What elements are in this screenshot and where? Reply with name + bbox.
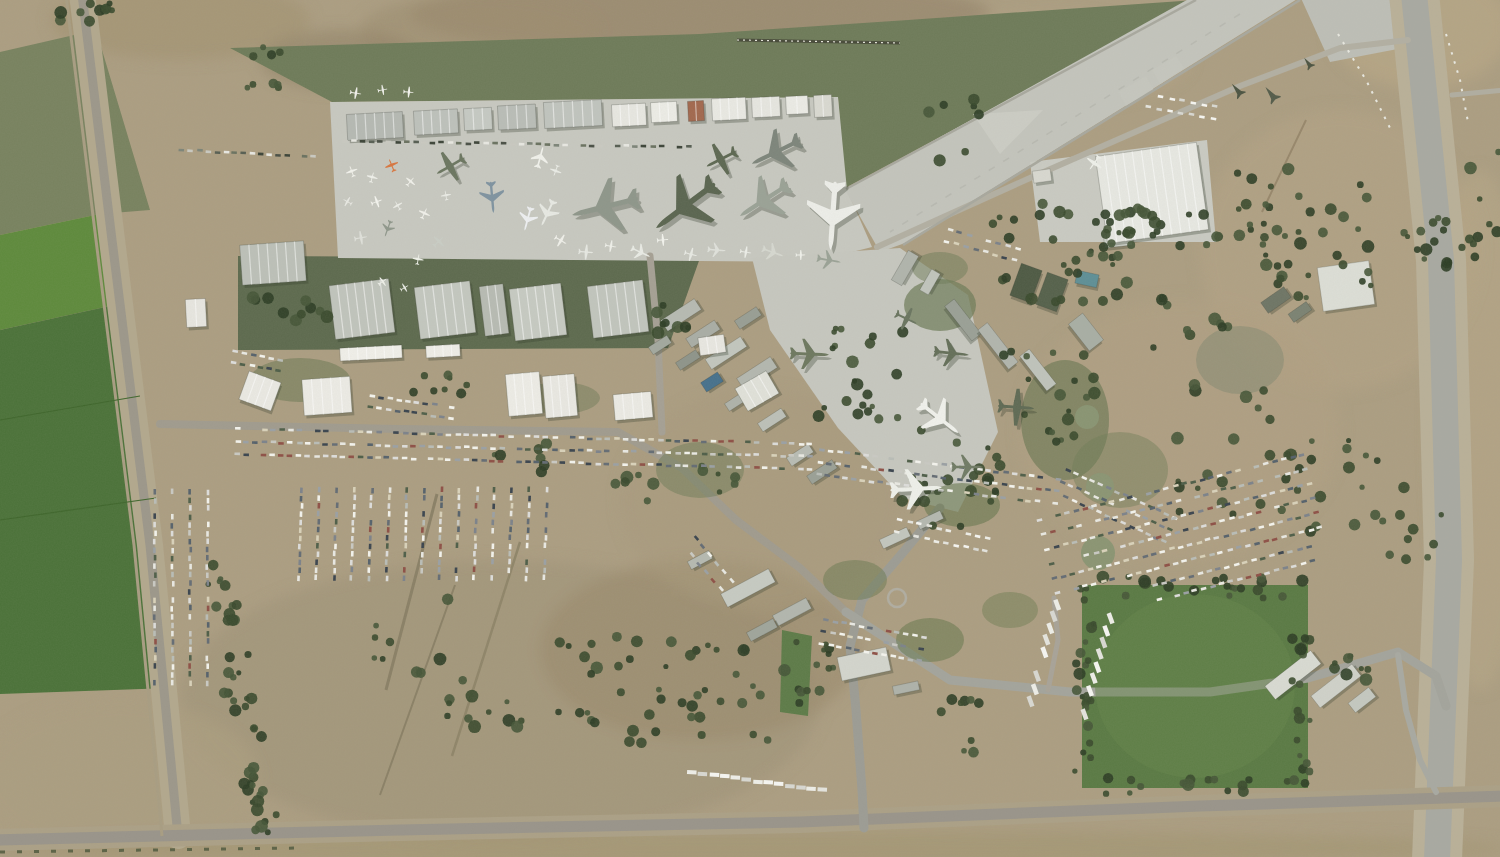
parked-vehicle bbox=[474, 535, 477, 541]
parked-vehicle bbox=[546, 503, 549, 509]
tree bbox=[1296, 680, 1304, 688]
tree bbox=[1026, 377, 1032, 383]
tree bbox=[1065, 268, 1073, 276]
parked-vehicle bbox=[438, 535, 441, 541]
parked-vehicle bbox=[745, 453, 751, 456]
tree bbox=[1395, 510, 1405, 520]
parked-vehicle bbox=[528, 503, 531, 509]
parked-vehicle bbox=[457, 526, 460, 532]
parked-vehicle bbox=[552, 448, 558, 451]
parked-vehicle bbox=[543, 574, 546, 580]
tree bbox=[1079, 350, 1089, 360]
tree bbox=[1150, 232, 1157, 239]
parked-vehicle bbox=[511, 503, 514, 509]
parked-vehicle bbox=[438, 141, 444, 144]
parked-vehicle bbox=[317, 527, 320, 533]
parked-vehicle bbox=[464, 445, 470, 448]
parked-vehicle bbox=[807, 468, 813, 471]
lawn-spot bbox=[982, 592, 1038, 628]
tree bbox=[245, 85, 251, 91]
parked-vehicle bbox=[455, 458, 461, 461]
parked-vehicle bbox=[439, 519, 442, 525]
parked-vehicle bbox=[421, 552, 424, 558]
tree bbox=[1364, 666, 1371, 673]
tree bbox=[1253, 585, 1263, 595]
parked-vehicle bbox=[317, 519, 320, 525]
parked-vehicle bbox=[340, 442, 346, 445]
tree bbox=[1260, 241, 1266, 247]
tree bbox=[793, 639, 799, 645]
parked-vehicle bbox=[332, 443, 338, 446]
parked-vehicle bbox=[490, 447, 496, 450]
tree bbox=[1100, 209, 1110, 219]
tree bbox=[694, 712, 705, 723]
parked-vehicle bbox=[235, 427, 241, 430]
tree bbox=[992, 453, 1001, 462]
tree bbox=[1189, 379, 1201, 391]
tree bbox=[76, 8, 84, 16]
parked-vehicle bbox=[154, 498, 157, 504]
parked-vehicle bbox=[545, 535, 548, 541]
tree bbox=[1083, 639, 1089, 645]
tree bbox=[940, 101, 948, 109]
tree bbox=[1130, 228, 1136, 234]
parked-vehicle bbox=[491, 520, 494, 526]
tree bbox=[1440, 227, 1447, 234]
tree bbox=[1268, 184, 1274, 190]
tree bbox=[468, 720, 481, 733]
parked-vehicle bbox=[154, 639, 157, 645]
parked-vehicle bbox=[189, 655, 192, 661]
parked-vehicle bbox=[386, 543, 389, 549]
parked-vehicle bbox=[753, 453, 759, 456]
parked-vehicle bbox=[252, 441, 258, 444]
parked-vehicle bbox=[171, 631, 174, 637]
tree bbox=[372, 655, 377, 660]
parked-vehicle bbox=[153, 614, 156, 620]
parked-vehicle bbox=[386, 576, 389, 582]
parked-vehicle bbox=[422, 511, 425, 517]
parked-vehicle bbox=[271, 440, 277, 443]
parked-vehicle bbox=[543, 568, 546, 574]
tree bbox=[236, 670, 241, 675]
tree bbox=[1297, 753, 1302, 758]
parked-vehicle bbox=[428, 445, 434, 448]
tree bbox=[1035, 210, 1045, 220]
tree bbox=[1255, 405, 1262, 412]
tree bbox=[1309, 438, 1315, 444]
tree bbox=[842, 396, 852, 406]
parked-vehicle bbox=[421, 543, 424, 549]
parked-vehicle bbox=[422, 520, 425, 526]
parked-vehicle bbox=[455, 567, 458, 573]
parked-vehicle bbox=[774, 781, 784, 785]
parked-vehicle bbox=[335, 512, 338, 518]
tent-roof bbox=[329, 279, 395, 340]
tree bbox=[1246, 173, 1257, 184]
tree bbox=[1073, 269, 1082, 278]
parked-vehicle bbox=[665, 451, 671, 454]
parked-vehicle bbox=[519, 143, 525, 146]
parked-vehicle bbox=[527, 142, 533, 145]
tree bbox=[874, 414, 883, 423]
parked-vehicle bbox=[589, 145, 595, 148]
tree bbox=[575, 708, 585, 718]
parked-vehicle bbox=[315, 568, 318, 574]
tree bbox=[1277, 275, 1285, 283]
tent bbox=[543, 99, 604, 131]
parked-vehicle bbox=[552, 461, 558, 464]
tree bbox=[1370, 510, 1380, 520]
parked-vehicle bbox=[489, 460, 495, 463]
tree bbox=[716, 472, 721, 477]
parked-vehicle bbox=[730, 775, 740, 779]
parked-vehicle bbox=[386, 551, 389, 557]
parked-vehicle bbox=[440, 496, 443, 502]
tree bbox=[946, 694, 957, 705]
parked-vehicle bbox=[314, 455, 320, 458]
tree bbox=[1091, 621, 1097, 627]
parked-vehicle bbox=[323, 455, 329, 458]
tree bbox=[230, 697, 237, 704]
parked-vehicle bbox=[684, 452, 690, 455]
tree bbox=[1274, 262, 1282, 270]
tree bbox=[276, 49, 284, 57]
parked-vehicle bbox=[207, 498, 210, 504]
tree bbox=[1001, 273, 1011, 283]
tree bbox=[999, 350, 1008, 359]
tent-rib bbox=[366, 347, 367, 360]
tent bbox=[505, 371, 545, 419]
parked-vehicle bbox=[351, 536, 354, 542]
parked-vehicle bbox=[153, 522, 156, 528]
building-roof bbox=[1317, 261, 1375, 312]
parked-vehicle bbox=[153, 581, 156, 587]
parked-vehicle bbox=[510, 143, 516, 146]
parked-vehicle bbox=[771, 454, 777, 457]
parked-vehicle bbox=[527, 528, 530, 534]
parked-vehicle bbox=[189, 671, 192, 677]
parked-vehicle bbox=[300, 511, 303, 517]
parked-vehicle bbox=[207, 631, 210, 637]
parked-vehicle bbox=[206, 573, 209, 579]
parked-vehicle bbox=[448, 141, 454, 144]
tree bbox=[620, 477, 629, 486]
parked-vehicle bbox=[353, 495, 356, 501]
parked-vehicle bbox=[420, 559, 423, 565]
tree bbox=[678, 698, 687, 707]
parked-vehicle bbox=[692, 465, 698, 468]
parked-vehicle bbox=[560, 449, 566, 452]
tree bbox=[1099, 242, 1109, 252]
tree bbox=[821, 647, 826, 652]
tree bbox=[1066, 409, 1071, 414]
parked-vehicle bbox=[542, 448, 548, 451]
parked-vehicle bbox=[420, 445, 426, 448]
parked-vehicle bbox=[525, 460, 531, 463]
parked-vehicle bbox=[316, 543, 319, 549]
parked-vehicle bbox=[353, 487, 356, 493]
tree bbox=[1282, 163, 1294, 175]
parked-vehicle bbox=[404, 536, 407, 542]
tree bbox=[1156, 294, 1168, 306]
parked-vehicle bbox=[687, 770, 697, 774]
tree bbox=[891, 369, 902, 380]
parked-vehicle bbox=[727, 465, 733, 468]
parked-vehicle bbox=[231, 151, 237, 154]
parked-vehicle bbox=[349, 575, 352, 581]
tree bbox=[750, 731, 757, 738]
parked-vehicle bbox=[798, 468, 804, 471]
tree bbox=[1295, 193, 1302, 200]
parked-vehicle bbox=[393, 457, 399, 460]
parked-vehicle bbox=[171, 647, 174, 653]
parked-vehicle bbox=[188, 663, 191, 669]
parked-vehicle bbox=[492, 142, 498, 145]
parked-vehicle bbox=[437, 445, 443, 448]
tree bbox=[698, 731, 706, 739]
tree bbox=[255, 820, 268, 833]
tree bbox=[1052, 437, 1060, 445]
parked-vehicle bbox=[430, 142, 436, 145]
tree bbox=[1307, 718, 1312, 723]
tree bbox=[1441, 217, 1450, 226]
tree bbox=[250, 81, 257, 88]
parked-vehicle bbox=[386, 141, 392, 144]
tree bbox=[227, 614, 239, 626]
parked-vehicle bbox=[154, 655, 157, 661]
parked-vehicle bbox=[423, 495, 426, 501]
tree bbox=[1294, 737, 1301, 744]
tree bbox=[635, 472, 642, 479]
tree bbox=[851, 378, 863, 390]
tree bbox=[321, 310, 334, 323]
parked-vehicle bbox=[349, 430, 355, 433]
tree bbox=[631, 635, 643, 647]
parked-vehicle bbox=[353, 504, 356, 510]
parked-vehicle bbox=[240, 151, 246, 154]
tree bbox=[1078, 296, 1088, 306]
tree bbox=[795, 699, 803, 707]
parked-vehicle bbox=[206, 150, 212, 153]
tent bbox=[611, 103, 648, 130]
tree bbox=[1282, 233, 1288, 239]
tree bbox=[1338, 211, 1349, 222]
tree bbox=[1110, 262, 1115, 267]
tree bbox=[219, 687, 230, 698]
parked-vehicle bbox=[677, 146, 683, 149]
tree bbox=[252, 795, 264, 807]
tree bbox=[1234, 170, 1241, 177]
parked-vehicle bbox=[189, 605, 192, 611]
parked-vehicle bbox=[718, 440, 724, 443]
tree bbox=[1301, 634, 1309, 642]
tree bbox=[830, 345, 836, 351]
parked-vehicle bbox=[153, 606, 156, 612]
tree bbox=[1234, 230, 1246, 242]
parked-vehicle bbox=[369, 140, 375, 143]
parked-vehicle bbox=[153, 598, 156, 604]
parked-vehicle bbox=[718, 453, 724, 456]
parked-vehicle bbox=[284, 154, 290, 157]
parked-vehicle bbox=[342, 140, 348, 143]
parked-vehicle bbox=[604, 463, 610, 466]
tree bbox=[1085, 657, 1092, 664]
parked-vehicle bbox=[509, 527, 512, 533]
tree bbox=[1080, 749, 1086, 755]
tent bbox=[509, 283, 569, 344]
tree bbox=[1007, 348, 1015, 356]
tree bbox=[1296, 229, 1302, 235]
tree bbox=[636, 738, 647, 749]
parked-vehicle bbox=[178, 149, 184, 152]
parked-vehicle bbox=[318, 503, 321, 509]
parked-vehicle bbox=[171, 623, 174, 629]
parked-vehicle bbox=[799, 454, 805, 457]
tree bbox=[1203, 241, 1210, 248]
parked-vehicle bbox=[389, 487, 392, 493]
tree bbox=[463, 382, 470, 389]
tent bbox=[302, 376, 355, 418]
tree bbox=[968, 737, 975, 744]
tree bbox=[1265, 450, 1276, 461]
parked-vehicle bbox=[351, 551, 354, 557]
tree bbox=[1332, 251, 1341, 260]
parked-vehicle bbox=[298, 568, 301, 574]
parked-vehicle bbox=[171, 572, 174, 578]
parked-vehicle bbox=[596, 438, 602, 441]
tree bbox=[1120, 209, 1130, 219]
tree bbox=[992, 487, 999, 494]
tree bbox=[813, 410, 825, 422]
parked-vehicle bbox=[269, 453, 275, 456]
parked-vehicle bbox=[493, 495, 496, 501]
tree bbox=[1211, 231, 1221, 241]
tree bbox=[1259, 386, 1268, 395]
parked-vehicle bbox=[153, 631, 156, 637]
tent-roof bbox=[413, 109, 458, 135]
parked-vehicle bbox=[340, 456, 346, 459]
parked-vehicle bbox=[288, 429, 294, 432]
parked-vehicle bbox=[207, 638, 210, 644]
parked-vehicle bbox=[420, 568, 423, 574]
tree bbox=[714, 647, 720, 653]
parked-vehicle bbox=[410, 445, 416, 448]
tent bbox=[698, 334, 729, 359]
parked-vehicle bbox=[631, 463, 637, 466]
tree bbox=[666, 636, 677, 647]
tree bbox=[1471, 253, 1480, 262]
tree bbox=[1071, 256, 1080, 265]
parked-vehicle bbox=[377, 140, 383, 143]
tree bbox=[1416, 227, 1425, 236]
parked-vehicle bbox=[334, 535, 337, 541]
tent bbox=[650, 101, 679, 125]
tree bbox=[1360, 673, 1373, 686]
tree bbox=[1062, 413, 1074, 425]
parked-vehicle bbox=[570, 461, 576, 464]
parked-vehicle bbox=[188, 498, 191, 504]
parked-vehicle bbox=[474, 544, 477, 550]
tree bbox=[409, 388, 418, 397]
tree bbox=[434, 653, 447, 666]
tree bbox=[686, 700, 698, 712]
parked-vehicle bbox=[315, 430, 321, 433]
parked-vehicle bbox=[171, 531, 174, 537]
tree bbox=[989, 219, 997, 227]
parked-vehicle bbox=[692, 452, 698, 455]
parked-vehicle bbox=[207, 522, 210, 528]
parked-vehicle bbox=[279, 428, 285, 431]
tree bbox=[663, 664, 668, 669]
tree bbox=[1208, 313, 1221, 326]
parked-vehicle bbox=[351, 543, 354, 549]
tree bbox=[756, 690, 765, 699]
tree bbox=[1138, 575, 1151, 588]
parked-vehicle bbox=[422, 535, 425, 541]
tree bbox=[1180, 780, 1187, 787]
parked-vehicle bbox=[438, 575, 441, 581]
parked-vehicle bbox=[402, 445, 408, 448]
parked-vehicle bbox=[648, 438, 654, 441]
parked-vehicle bbox=[491, 528, 494, 534]
tree bbox=[1159, 577, 1164, 582]
tree bbox=[778, 664, 790, 676]
parked-vehicle bbox=[481, 459, 487, 462]
tree bbox=[864, 407, 872, 415]
tree bbox=[1023, 353, 1029, 359]
parked-vehicle bbox=[510, 520, 513, 526]
tree bbox=[587, 640, 595, 648]
tree bbox=[84, 16, 95, 27]
parked-vehicle bbox=[785, 784, 795, 788]
tree bbox=[1092, 218, 1100, 226]
parked-vehicle bbox=[353, 512, 356, 518]
parked-vehicle bbox=[736, 453, 742, 456]
parked-vehicle bbox=[666, 465, 672, 468]
parked-vehicle bbox=[297, 576, 300, 582]
parked-vehicle bbox=[763, 780, 773, 784]
parked-vehicle bbox=[350, 443, 356, 446]
tree bbox=[411, 666, 422, 677]
parked-vehicle bbox=[404, 140, 410, 143]
parked-vehicle bbox=[234, 452, 240, 455]
tent bbox=[240, 241, 309, 288]
parked-vehicle bbox=[367, 431, 373, 434]
tree bbox=[1121, 276, 1133, 288]
parked-vehicle bbox=[613, 463, 619, 466]
tent-rib bbox=[357, 347, 358, 360]
tree bbox=[987, 498, 994, 505]
parked-vehicle bbox=[475, 519, 478, 525]
tree bbox=[256, 731, 267, 742]
parked-vehicle bbox=[675, 452, 681, 455]
parked-vehicle bbox=[458, 511, 461, 517]
tree bbox=[1113, 251, 1123, 261]
parked-vehicle bbox=[429, 432, 435, 435]
parked-vehicle bbox=[172, 581, 175, 587]
tree bbox=[1408, 524, 1419, 535]
parked-vehicle bbox=[171, 523, 174, 529]
tree bbox=[1368, 283, 1373, 288]
parked-vehicle bbox=[310, 155, 316, 158]
parked-vehicle bbox=[296, 454, 302, 457]
parked-vehicle bbox=[368, 576, 371, 582]
tree bbox=[1088, 372, 1099, 383]
tree bbox=[1087, 250, 1094, 257]
parked-vehicle bbox=[456, 542, 459, 548]
tent bbox=[340, 345, 405, 364]
